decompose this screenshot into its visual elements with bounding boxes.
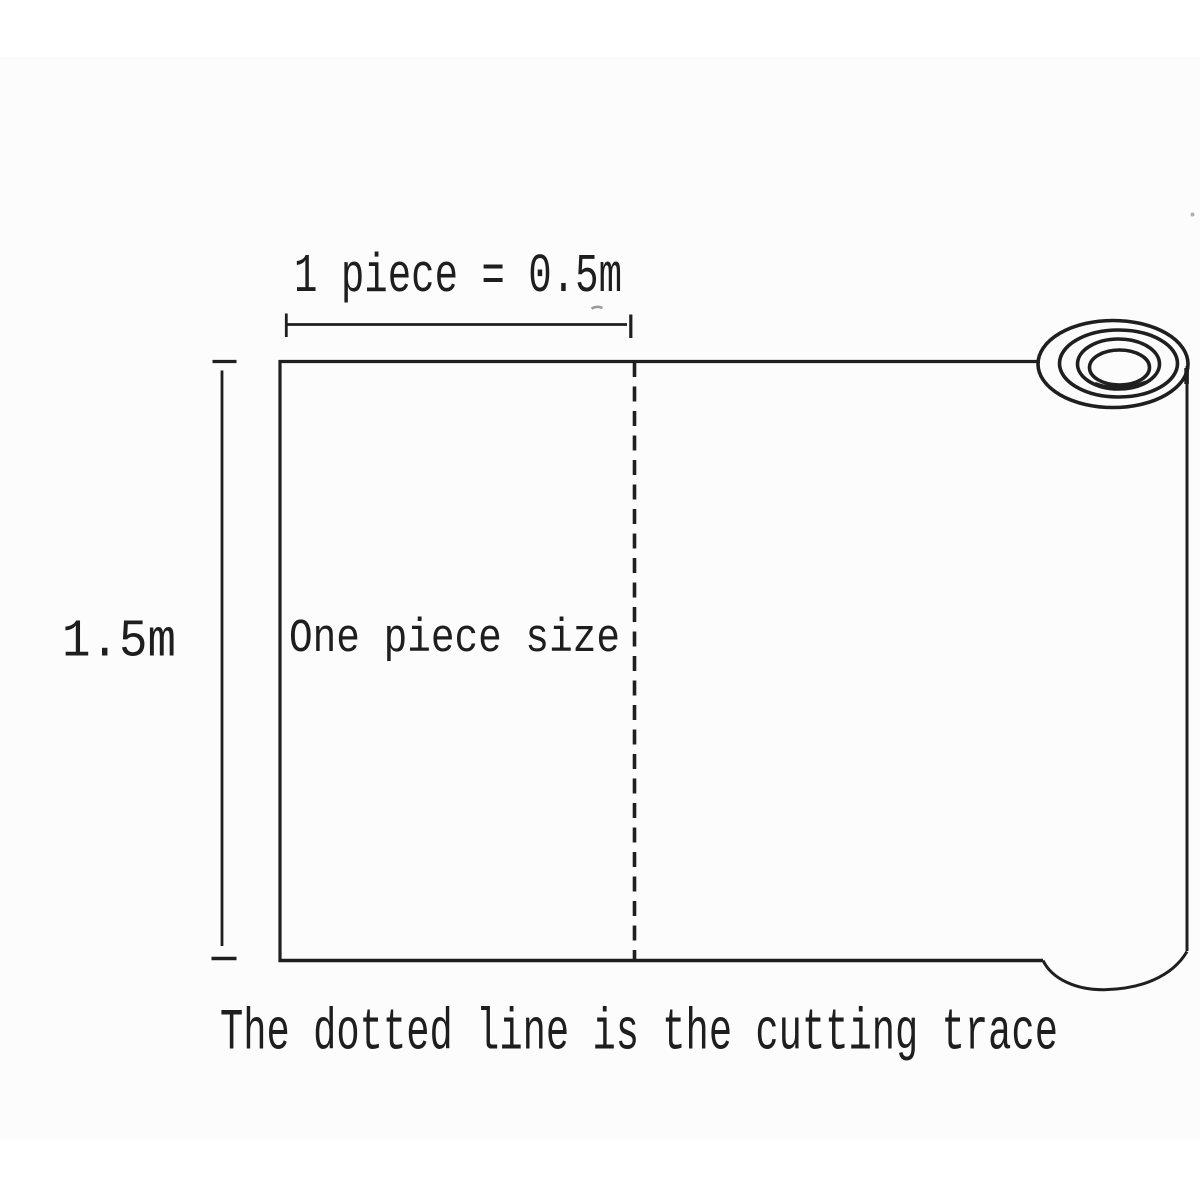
- svg-text:The dotted line is the cutting: The dotted line is the cutting trace: [220, 1002, 1058, 1067]
- svg-text:One piece size: One piece size: [289, 613, 620, 666]
- svg-text:1 piece = 0.5m: 1 piece = 0.5m: [294, 245, 622, 308]
- svg-text:1.5m: 1.5m: [62, 612, 176, 672]
